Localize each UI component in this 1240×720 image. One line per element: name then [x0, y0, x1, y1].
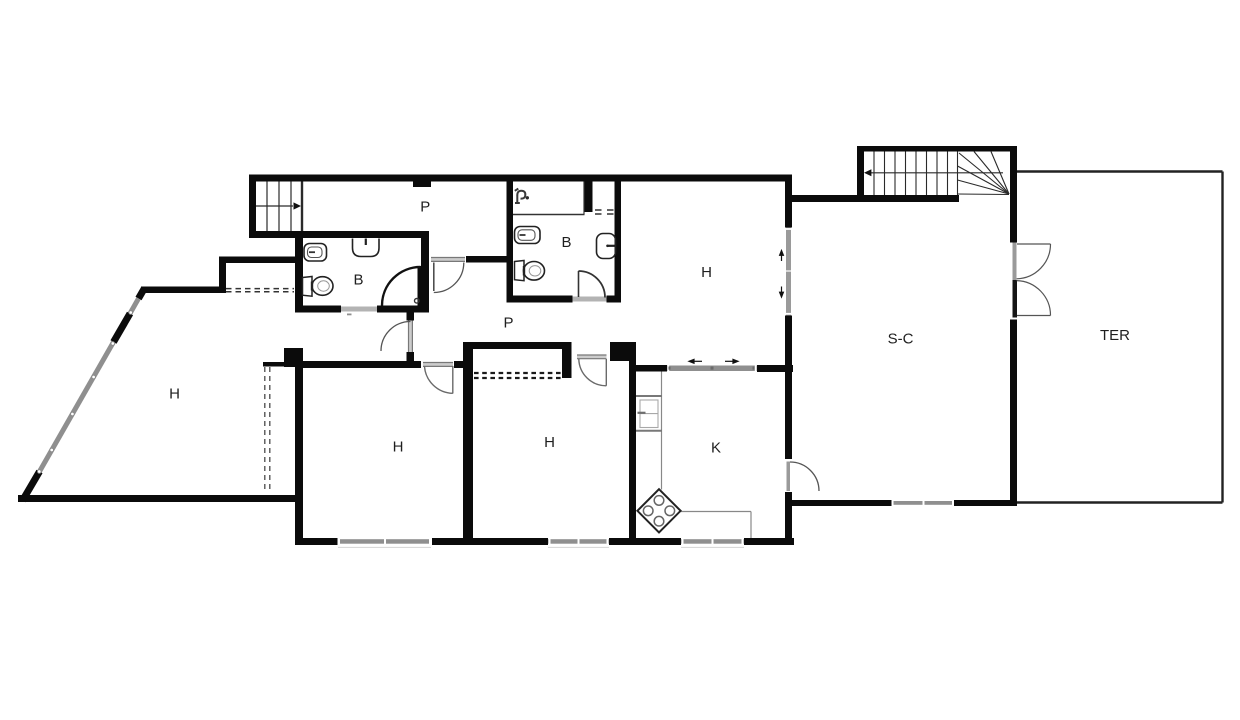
svg-text:TER: TER [1100, 327, 1130, 344]
svg-text:P: P [503, 315, 513, 332]
svg-text:H: H [169, 386, 180, 403]
svg-text:K: K [711, 440, 721, 457]
svg-text:S-C: S-C [888, 331, 914, 348]
svg-text:P: P [420, 199, 430, 216]
svg-text:H: H [393, 439, 404, 456]
svg-text:B: B [561, 234, 571, 251]
svg-text:H: H [701, 264, 712, 281]
svg-text:H: H [544, 434, 555, 451]
svg-text:B: B [353, 272, 363, 289]
